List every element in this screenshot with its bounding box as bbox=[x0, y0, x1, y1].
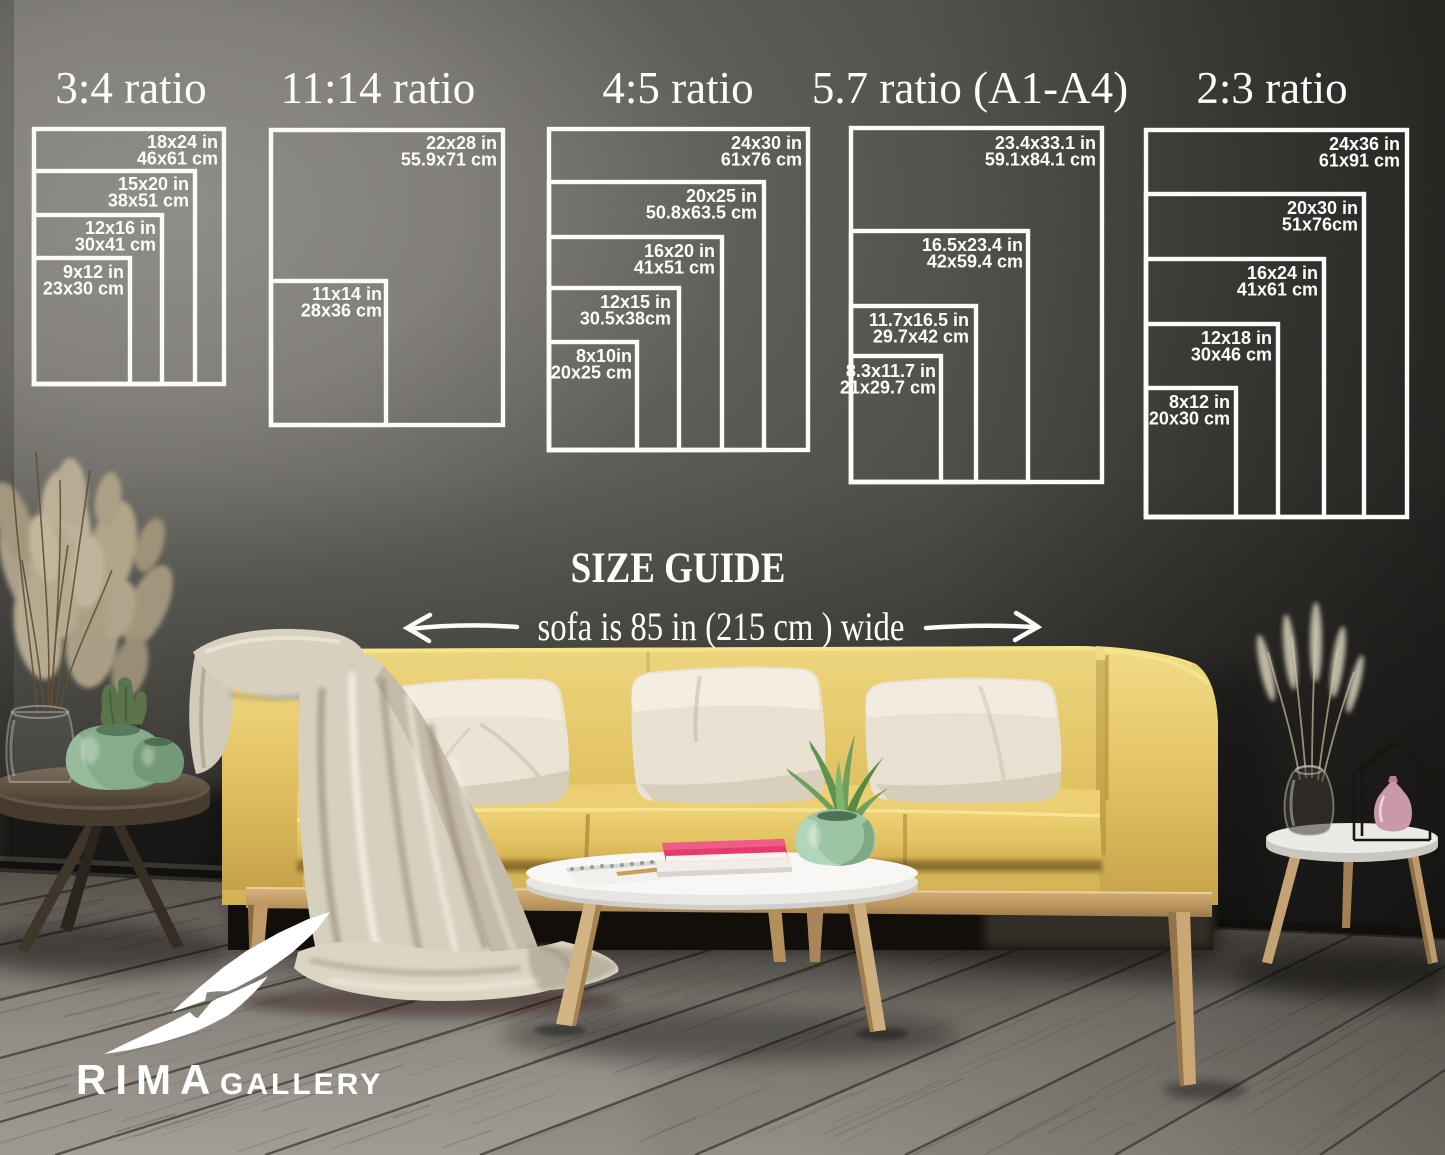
svg-text:16.5x23.4 in42x59.4 cm: 16.5x23.4 in42x59.4 cm bbox=[922, 235, 1023, 272]
svg-text:SIZE GUIDE: SIZE GUIDE bbox=[571, 543, 786, 591]
svg-text:sofa is 85 in (215 cm ) wide: sofa is 85 in (215 cm ) wide bbox=[538, 604, 905, 649]
svg-text:RIMA: RIMA bbox=[76, 1056, 219, 1103]
svg-text:11:14 ratio: 11:14 ratio bbox=[281, 63, 476, 113]
svg-text:11x14 in28x36 cm: 11x14 in28x36 cm bbox=[301, 284, 382, 321]
svg-text:16x24 in41x61 cm: 16x24 in41x61 cm bbox=[1237, 263, 1318, 300]
svg-text:11.7x16.5 in29.7x42 cm: 11.7x16.5 in29.7x42 cm bbox=[869, 310, 969, 347]
svg-text:16x20 in41x51 cm: 16x20 in41x51 cm bbox=[634, 241, 715, 278]
svg-text:24x30 in61x76 cm: 24x30 in61x76 cm bbox=[721, 133, 802, 170]
svg-text:8.3x11.7 in21x29.7 cm: 8.3x11.7 in21x29.7 cm bbox=[840, 361, 936, 398]
svg-text:GALLERY: GALLERY bbox=[220, 1068, 383, 1101]
svg-text:2:3 ratio: 2:3 ratio bbox=[1196, 63, 1347, 113]
svg-text:20x30 in51x76cm: 20x30 in51x76cm bbox=[1282, 198, 1358, 235]
svg-text:23.4x33.1 in59.1x84.1 cm: 23.4x33.1 in59.1x84.1 cm bbox=[985, 133, 1096, 170]
svg-text:3:4 ratio: 3:4 ratio bbox=[55, 63, 206, 113]
svg-text:4:5 ratio: 4:5 ratio bbox=[602, 63, 753, 113]
svg-text:24x36 in61x91 cm: 24x36 in61x91 cm bbox=[1319, 134, 1400, 171]
svg-text:15x20 in38x51 cm: 15x20 in38x51 cm bbox=[108, 174, 189, 211]
svg-text:12x18 in30x46 cm: 12x18 in30x46 cm bbox=[1191, 328, 1272, 365]
svg-text:18x24 in46x61 cm: 18x24 in46x61 cm bbox=[137, 132, 218, 169]
svg-text:5.7 ratio (A1-A4): 5.7 ratio (A1-A4) bbox=[812, 63, 1128, 113]
svg-text:12x16 in30x41 cm: 12x16 in30x41 cm bbox=[75, 218, 156, 255]
